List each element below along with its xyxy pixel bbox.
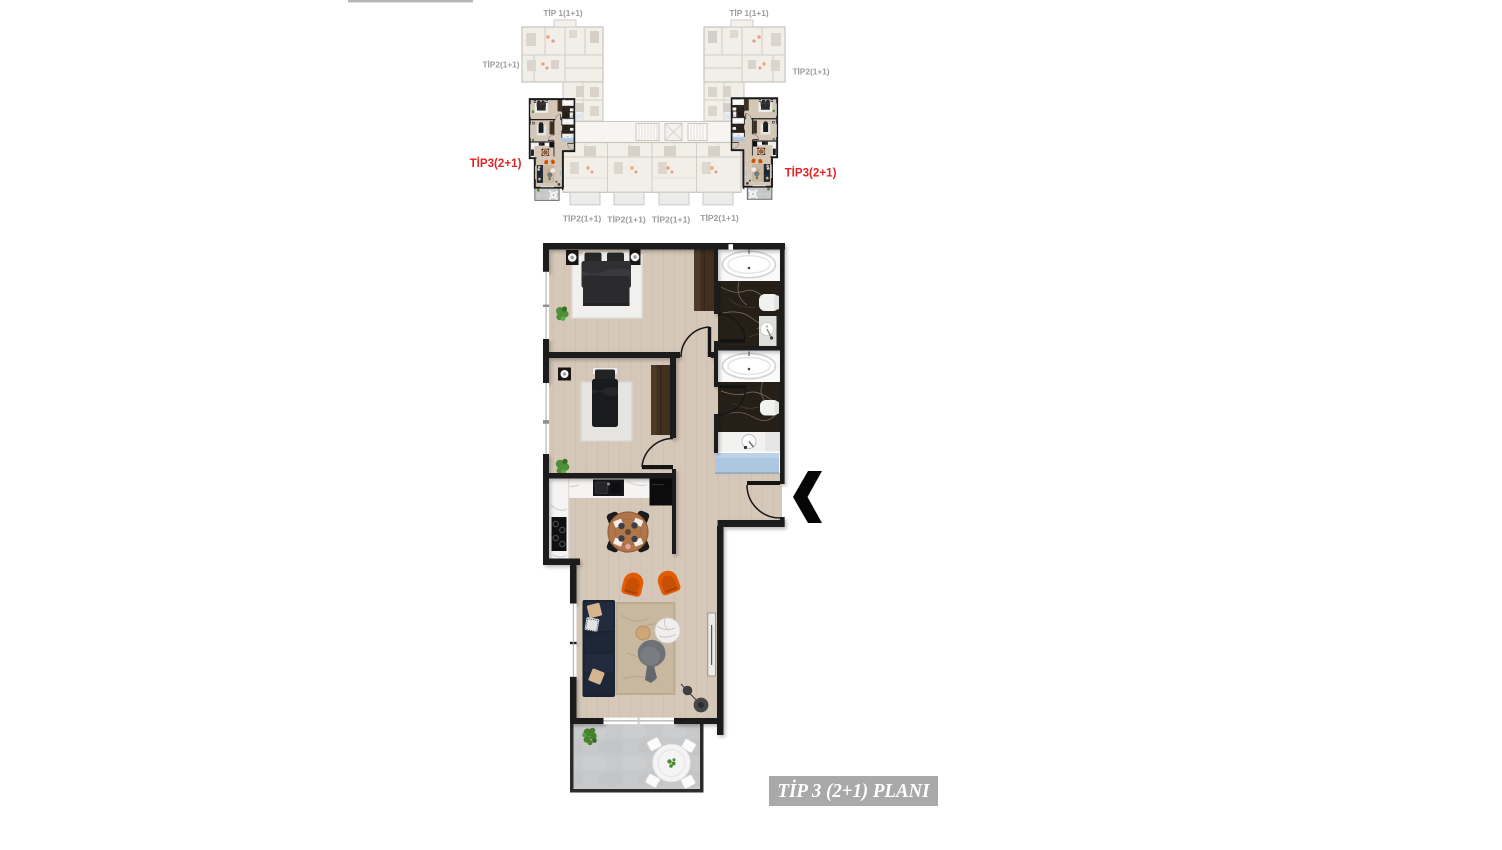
svg-text:TİP2(1+1): TİP2(1+1) (700, 213, 739, 223)
svg-text:TİP2(1+1): TİP2(1+1) (792, 67, 829, 77)
svg-text:TİP 3 (2+1) PLANI: TİP 3 (2+1) PLANI (778, 778, 931, 802)
svg-text:TİP 1(1+1): TİP 1(1+1) (543, 8, 583, 18)
svg-text:TİP2(1+1): TİP2(1+1) (652, 215, 691, 225)
svg-text:TİP3(2+1): TİP3(2+1) (785, 167, 837, 180)
svg-text:TİP3(2+1): TİP3(2+1) (470, 157, 522, 170)
svg-text:TİP2(1+1): TİP2(1+1) (563, 214, 602, 224)
svg-text:TİP2(1+1): TİP2(1+1) (482, 60, 519, 70)
svg-text:TİP 1(1+1): TİP 1(1+1) (729, 8, 769, 18)
svg-text:TİP2(1+1): TİP2(1+1) (607, 215, 646, 225)
